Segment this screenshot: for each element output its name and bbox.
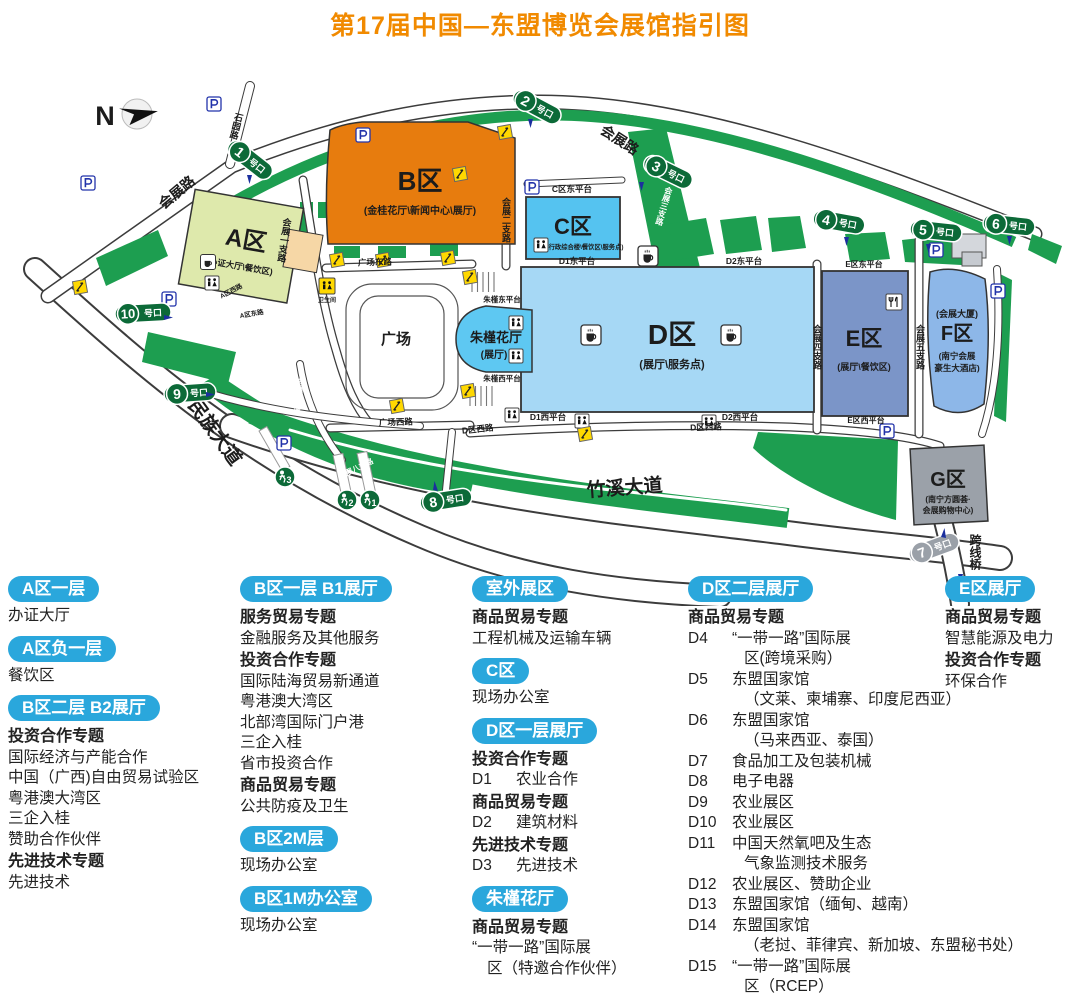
legend-line: D11中国天然氧吧及生态 — [688, 834, 940, 855]
legend: A区一层 办证大厅 A区负一层 餐饮区 B区二层 B2展厅 投资合作专题 国际经… — [0, 574, 1080, 994]
toilet-icon — [205, 276, 219, 290]
restaurant-icon — [886, 294, 902, 310]
compass: N — [95, 99, 159, 131]
building-g-sub1: (南宁方圆荟· — [925, 494, 970, 504]
legend-line: 公共防疫及卫生 — [240, 797, 466, 818]
legend-line: 区（RCEP） — [688, 977, 940, 998]
road-label: 会展七支路 — [586, 451, 628, 465]
legend-line: D13东盟国家馆（缅甸、越南） — [688, 895, 940, 916]
legend-item-text: 东盟国家馆 — [732, 671, 810, 688]
legend-line: 服务贸易专题 — [240, 606, 466, 629]
legend-col-b1: B区一层 B1展厅 服务贸易专题 金融服务及其他服务 投资合作专题 国际陆海贸易… — [240, 574, 466, 936]
legend-line: 北部湾国际门户港 — [240, 713, 466, 734]
legend-line: 环保合作 — [945, 672, 1075, 693]
legend-item-text: C区 — [486, 661, 515, 680]
legend-col-d2: D区二层展厅 商品贸易专题 D4“一带一路”国际展 区(跨境采购） D5东盟国家… — [688, 574, 940, 998]
toilet-icon — [509, 349, 523, 363]
road-label: 会展路 — [598, 122, 643, 159]
legend-line: 现场办公室 — [240, 856, 466, 877]
legend-item-text: 先进技术专题 — [472, 837, 568, 854]
svg-text:号口: 号口 — [1008, 221, 1027, 233]
legend-line: （文莱、柬埔寨、印度尼西亚） — [688, 690, 940, 711]
venue-map: A区 (办证大厅\餐饮区) B区 (金桂花厅\新闻中心\展厅) C区 (行政综合… — [0, 34, 1080, 611]
legend-line: D1农业合作 — [472, 770, 684, 791]
legend-item-text: 商品贸易专题 — [472, 919, 568, 936]
legend-line: 三企入桂 — [240, 733, 466, 754]
legend-line: （老挝、菲律宾、新加坡、东盟秘书处） — [688, 936, 940, 957]
building-f-sub2: (南宁会展 — [939, 351, 976, 361]
legend-item-text: 现场办公室 — [240, 857, 318, 874]
building-d-sub: (展厅\服务点) — [639, 357, 705, 371]
legend-item-text: 投资合作专题 — [945, 652, 1041, 669]
gate-2: 2号口 — [509, 86, 565, 129]
legend-item-text: 三企入桂 — [240, 734, 302, 751]
legend-item-text: 东盟国家馆 — [732, 917, 810, 934]
building-e-name: E区 — [846, 326, 883, 351]
legend-line: D6东盟国家馆 — [688, 711, 940, 732]
svg-text:10: 10 — [120, 306, 135, 322]
legend-line: 先进技术专题 — [472, 834, 684, 857]
legend-item-text: 先进技术 — [8, 874, 70, 891]
legend-item-text: 餐饮区 — [8, 667, 55, 684]
compass-letter: N — [95, 101, 115, 131]
zhujin-hall-name: 朱槿花厅 — [469, 330, 522, 345]
road-label: 会展七支路 — [721, 463, 763, 480]
legend-line: A区一层 — [8, 576, 99, 602]
legend-line: D9农业展区 — [688, 793, 940, 814]
legend-item-text: 气象监测技术服务 — [744, 855, 868, 872]
building-f: (会展大厦) F区 (南宁会展 豪生大酒店) — [928, 269, 989, 412]
legend-item-code: D6 — [688, 711, 732, 732]
road-label: 广场东路 — [358, 256, 393, 267]
legend-line: D14东盟国家馆 — [688, 916, 940, 937]
legend-line: D8电子电器 — [688, 772, 940, 793]
legend-item-text: 环保合作 — [945, 673, 1007, 690]
legend-line: 现场办公室 — [240, 916, 466, 937]
toilet-icon — [575, 414, 589, 428]
road-label: 会展四支路 — [812, 323, 823, 370]
building-e: E区 (展厅\餐饮区) — [822, 271, 908, 416]
legend-line: 餐饮区 — [8, 666, 234, 687]
building-b: B区 (金桂花厅\新闻中心\展厅) — [326, 122, 515, 244]
gate-4: 4号口 — [812, 207, 867, 237]
legend-item-text: 粤港澳大湾区 — [240, 693, 333, 710]
building-f-sub1: (会展大厦) — [936, 308, 978, 319]
legend-line: “一带一路”国际展 — [472, 938, 684, 959]
legend-item-code: D7 — [688, 752, 732, 773]
legend-line: 商品贸易专题 — [472, 916, 684, 939]
legend-line: 赞助合作伙伴 — [8, 830, 234, 851]
legend-line: 室外展区 — [472, 576, 568, 602]
legend-line: 国际经济与产能合作 — [8, 748, 234, 769]
platform-label: D2西平台 — [722, 412, 759, 422]
svg-text:号口: 号口 — [190, 387, 209, 398]
legend-item-text: 三企入桂 — [8, 810, 70, 827]
legend-line: 先进技术专题 — [8, 850, 234, 873]
legend-line: D区一层展厅 — [472, 718, 597, 744]
toilet-label: 卫生间 — [318, 296, 336, 304]
legend-item-text: 先进技术 — [516, 857, 578, 874]
legend-item-text: 现场办公室 — [472, 689, 550, 706]
legend-line: C区 — [472, 658, 529, 684]
legend-line: 区(跨境采购） — [688, 649, 940, 670]
legend-item-text: 电子电器 — [732, 773, 794, 790]
legend-line: 现场办公室 — [472, 688, 684, 709]
legend-line: 投资合作专题 — [8, 725, 234, 748]
legend-line: B区1M办公室 — [240, 886, 372, 912]
legend-item-text: 先进技术专题 — [8, 853, 104, 870]
legend-item-code: D12 — [688, 875, 732, 896]
legend-line: 省市投资合作 — [240, 754, 466, 775]
legend-item-code: D4 — [688, 629, 732, 650]
legend-item-text: 东盟国家馆（缅甸、越南） — [732, 896, 918, 913]
legend-col-ab: A区一层 办证大厅 A区负一层 餐饮区 B区二层 B2展厅 投资合作专题 国际经… — [8, 574, 234, 893]
ped-gate-3: 3 — [275, 467, 295, 487]
legend-line: E区展厅 — [945, 576, 1035, 602]
legend-item-text: 商品贸易专题 — [472, 794, 568, 811]
legend-item-text: 投资合作专题 — [472, 751, 568, 768]
building-b-sub: (金桂花厅\新闻中心\展厅) — [364, 204, 476, 217]
legend-item-text: 朱槿花厅 — [486, 889, 554, 908]
legend-item-text: 建筑材料 — [516, 814, 578, 831]
building-g-sub2: 会展购物中心) — [923, 505, 974, 515]
platform-label: 朱槿西平台 — [483, 373, 521, 383]
road-label: 会展二支路 — [501, 196, 512, 243]
legend-item-text: 智慧能源及电力 — [945, 630, 1054, 647]
legend-line: A区负一层 — [8, 636, 116, 662]
plaza-label: 广场 — [381, 330, 411, 348]
legend-line: D区二层展厅 — [688, 576, 813, 602]
svg-text:9: 9 — [173, 386, 182, 403]
legend-item-code: D5 — [688, 670, 732, 691]
legend-line: B区一层 B1展厅 — [240, 576, 392, 602]
legend-item-text: 北部湾国际门户港 — [240, 714, 364, 731]
legend-line: D2建筑材料 — [472, 813, 684, 834]
legend-line: D12农业展区、赞助企业 — [688, 875, 940, 896]
toilet-icon — [505, 408, 519, 422]
legend-item-code: D11 — [688, 834, 732, 855]
legend-line: B区二层 B2展厅 — [8, 695, 160, 721]
legend-line: 朱槿花厅 — [472, 886, 568, 912]
legend-item-code: D1 — [472, 770, 516, 791]
legend-item-text: 商品贸易专题 — [945, 609, 1041, 626]
gate-10: 10号口 — [114, 301, 171, 325]
legend-item-text: 农业展区 — [732, 794, 794, 811]
legend-col-cd: 室外展区 商品贸易专题 工程机械及运输车辆 C区 现场办公室 D区一层展厅 投资… — [472, 574, 684, 979]
legend-item-text: 工程机械及运输车辆 — [472, 630, 612, 647]
legend-item-text: 区(跨境采购） — [744, 650, 842, 667]
legend-item-text: 赞助合作伙伴 — [8, 831, 101, 848]
toilet-icon — [319, 278, 335, 294]
legend-item-text: “一带一路”国际展 — [732, 630, 851, 647]
legend-item-code: D9 — [688, 793, 732, 814]
platform-label: 朱槿东平台 — [483, 294, 521, 304]
legend-item-text: 商品贸易专题 — [472, 609, 568, 626]
platform-label: E区西平台 — [847, 415, 884, 425]
legend-item-text: 中国（广西)自由贸易试验区 — [8, 769, 199, 786]
zhujin-hall-sub: (展厅) — [481, 349, 508, 361]
toilet-icon — [534, 238, 548, 252]
legend-item-text: A区一层 — [22, 579, 85, 598]
legend-line: 区（特邀合作伙伴） — [472, 959, 684, 980]
legend-line: 智慧能源及电力 — [945, 629, 1075, 650]
legend-line: 国际陆海贸易新通道 — [240, 672, 466, 693]
legend-line: 气象监测技术服务 — [688, 854, 940, 875]
legend-item-text: 省市投资合作 — [240, 755, 333, 772]
building-d-name: D区 — [648, 319, 696, 350]
building-c-sub: (行政综合楼\餐饮区\服务点) — [547, 242, 624, 251]
svg-text:1: 1 — [371, 498, 376, 508]
legend-line: 先进技术 — [8, 873, 234, 894]
legend-item-text: B区二层 B2展厅 — [22, 698, 146, 717]
legend-item-text: D区二层展厅 — [702, 579, 799, 598]
legend-item-text: E区展厅 — [959, 579, 1021, 598]
legend-line: 工程机械及运输车辆 — [472, 629, 684, 650]
svg-text:3: 3 — [286, 475, 291, 485]
legend-line: B区2M层 — [240, 826, 338, 852]
legend-line: D5东盟国家馆 — [688, 670, 940, 691]
legend-item-text: （文莱、柬埔寨、印度尼西亚） — [744, 691, 961, 708]
platform-label: D1西平台 — [530, 412, 567, 422]
legend-line: 中国（广西)自由贸易试验区 — [8, 768, 234, 789]
legend-line: D15“一带一路”国际展 — [688, 957, 940, 978]
building-c-name: C区 — [554, 214, 592, 239]
legend-item-code: D15 — [688, 957, 732, 978]
legend-item-text: 金融服务及其他服务 — [240, 630, 380, 647]
legend-item-text: “一带一路”国际展 — [472, 939, 591, 956]
legend-item-text: 国际陆海贸易新通道 — [240, 673, 380, 690]
legend-item-text: 办证大厅 — [8, 607, 70, 624]
legend-line: 投资合作专题 — [945, 649, 1075, 672]
legend-item-text: 商品贸易专题 — [688, 609, 784, 626]
road-label: 广场西路 — [379, 416, 414, 427]
legend-line: 商品贸易专题 — [472, 791, 684, 814]
legend-line: 三企入桂 — [8, 809, 234, 830]
legend-item-text: （马来西亚、泰国） — [744, 732, 884, 749]
legend-line: 投资合作专题 — [472, 748, 684, 771]
legend-item-code: D13 — [688, 895, 732, 916]
legend-line: 金融服务及其他服务 — [240, 629, 466, 650]
legend-item-text: 粤港澳大湾区 — [8, 790, 101, 807]
legend-item-text: 商品贸易专题 — [240, 777, 336, 794]
legend-item-text: 现场办公室 — [240, 917, 318, 934]
building-f-name: F区 — [941, 323, 973, 345]
legend-item-text: “一带一路”国际展 — [732, 958, 851, 975]
legend-item-text: B区1M办公室 — [254, 889, 358, 908]
legend-line: 商品贸易专题 — [240, 774, 466, 797]
legend-col-e: E区展厅 商品贸易专题 智慧能源及电力 投资合作专题 环保合作 — [945, 574, 1075, 692]
building-e-sub: (展厅\餐饮区) — [837, 361, 891, 372]
legend-line: D10农业展区 — [688, 813, 940, 834]
toilet-icon — [509, 316, 523, 330]
svg-text:2: 2 — [348, 498, 353, 508]
platform-label: E区东平台 — [845, 259, 882, 269]
svg-text:号口: 号口 — [935, 227, 954, 239]
legend-line: 商品贸易专题 — [472, 606, 684, 629]
legend-line: 粤港澳大湾区 — [8, 789, 234, 810]
legend-item-text: B区一层 B1展厅 — [254, 579, 378, 598]
legend-line: D3先进技术 — [472, 856, 684, 877]
ped-gate-1: 1 — [360, 490, 380, 510]
legend-line: D7食品加工及包装机械 — [688, 752, 940, 773]
svg-text:号口: 号口 — [144, 308, 163, 319]
legend-line: 商品贸易专题 — [688, 606, 940, 629]
legend-item-text: 服务贸易专题 — [240, 609, 336, 626]
legend-item-code: D2 — [472, 813, 516, 834]
building-g-name: G区 — [930, 469, 966, 491]
legend-item-text: 投资合作专题 — [240, 652, 336, 669]
legend-line: 办证大厅 — [8, 606, 234, 627]
legend-item-code: D14 — [688, 916, 732, 937]
legend-line: 投资合作专题 — [240, 649, 466, 672]
legend-item-code: D10 — [688, 813, 732, 834]
legend-line: 商品贸易专题 — [945, 606, 1075, 629]
ped-gate-2: 2 — [337, 490, 357, 510]
road-label: 跨线桥 — [968, 534, 982, 571]
building-g: G区 (南宁方圆荟· 会展购物中心) — [910, 445, 988, 525]
platform-label: D1东平台 — [559, 256, 596, 266]
legend-item-code: D8 — [688, 772, 732, 793]
road-label: A区东路 — [239, 307, 265, 320]
building-b-name: B区 — [398, 166, 443, 196]
legend-item-text: 食品加工及包装机械 — [732, 753, 872, 770]
legend-item-text: B区2M层 — [254, 829, 324, 848]
legend-item-text: 投资合作专题 — [8, 728, 104, 745]
legend-line: D4“一带一路”国际展 — [688, 629, 940, 650]
legend-item-text: 区（特邀合作伙伴） — [487, 960, 627, 977]
legend-item-text: 农业合作 — [516, 771, 578, 788]
legend-item-text: A区负一层 — [22, 639, 102, 658]
legend-item-text: 东盟国家馆 — [732, 712, 810, 729]
legend-item-text: 中国天然氧吧及生态 — [732, 835, 872, 852]
road-label: D区西路 — [690, 421, 722, 432]
legend-item-text: 农业展区 — [732, 814, 794, 831]
platform-label: D2东平台 — [726, 256, 763, 266]
legend-item-text: 公共防疫及卫生 — [240, 798, 349, 815]
legend-item-text: 农业展区、赞助企业 — [732, 876, 872, 893]
platform-label: C区东平台 — [552, 184, 593, 194]
legend-item-text: D区一层展厅 — [486, 721, 583, 740]
legend-item-text: （老挝、菲律宾、新加坡、东盟秘书处） — [744, 937, 1023, 954]
legend-item-text: 室外展区 — [486, 579, 554, 598]
legend-item-code: D3 — [472, 856, 516, 877]
legend-item-text: 区（RCEP） — [744, 978, 834, 995]
legend-line: （马来西亚、泰国） — [688, 731, 940, 752]
building-d: D区 (展厅\服务点) — [521, 267, 814, 412]
building-f-sub3: 豪生大酒店) — [934, 363, 980, 373]
legend-line: 粤港澳大湾区 — [240, 692, 466, 713]
legend-item-text: 国际经济与产能合作 — [8, 749, 148, 766]
road-label: 会展五支路 — [915, 323, 926, 370]
